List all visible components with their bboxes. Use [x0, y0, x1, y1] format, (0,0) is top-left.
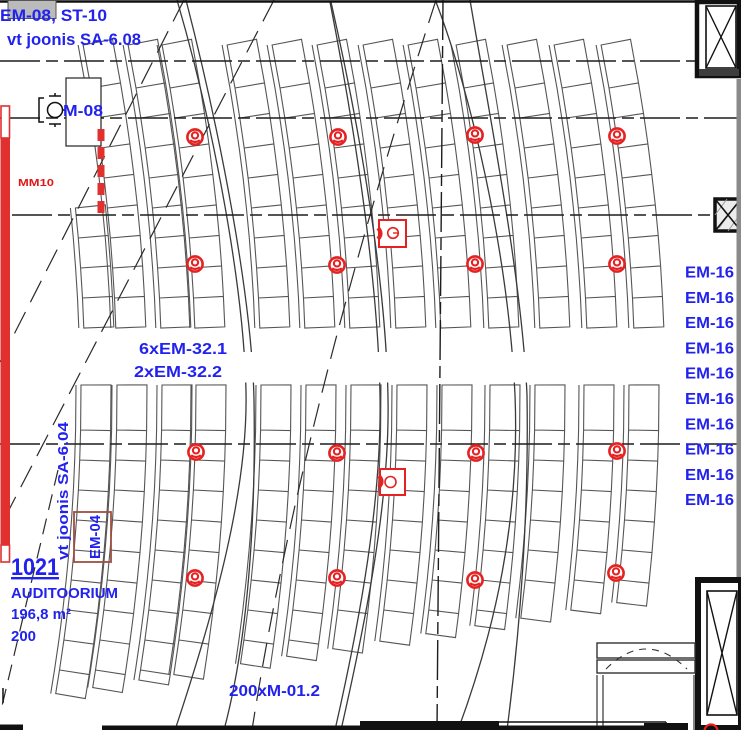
- svg-text:200xM-01.2: 200xM-01.2: [229, 683, 320, 700]
- svg-text:1021: 1021: [11, 554, 59, 581]
- svg-text:EM-16: EM-16: [685, 442, 734, 459]
- svg-text:196,8 m²: 196,8 m²: [11, 606, 71, 623]
- svg-text:2xEM-32.2: 2xEM-32.2: [134, 364, 222, 381]
- svg-text:EM-16: EM-16: [685, 467, 734, 484]
- svg-text:EM-16: EM-16: [685, 290, 734, 307]
- svg-text:EM-16: EM-16: [685, 265, 734, 282]
- svg-text:EM-16: EM-16: [685, 340, 734, 357]
- svg-text:EM-08, ST-10: EM-08, ST-10: [0, 7, 107, 25]
- svg-text:M-08: M-08: [63, 103, 103, 120]
- svg-text:EM-16: EM-16: [685, 492, 734, 509]
- svg-text:EM-04: EM-04: [87, 514, 104, 559]
- svg-text:MM10: MM10: [18, 178, 55, 189]
- svg-text:EM-16: EM-16: [685, 416, 734, 433]
- svg-text:EM-16: EM-16: [685, 366, 734, 383]
- svg-text:EM-16: EM-16: [685, 391, 734, 408]
- svg-text:vt joonis SA-6.08: vt joonis SA-6.08: [7, 31, 141, 49]
- svg-text:AUDITOORIUM: AUDITOORIUM: [11, 585, 118, 602]
- svg-text:vt joonis SA-6.04: vt joonis SA-6.04: [55, 421, 72, 560]
- svg-text:200: 200: [11, 628, 36, 645]
- svg-text:EM-16: EM-16: [685, 315, 734, 332]
- svg-text:6xEM-32.1: 6xEM-32.1: [139, 341, 227, 358]
